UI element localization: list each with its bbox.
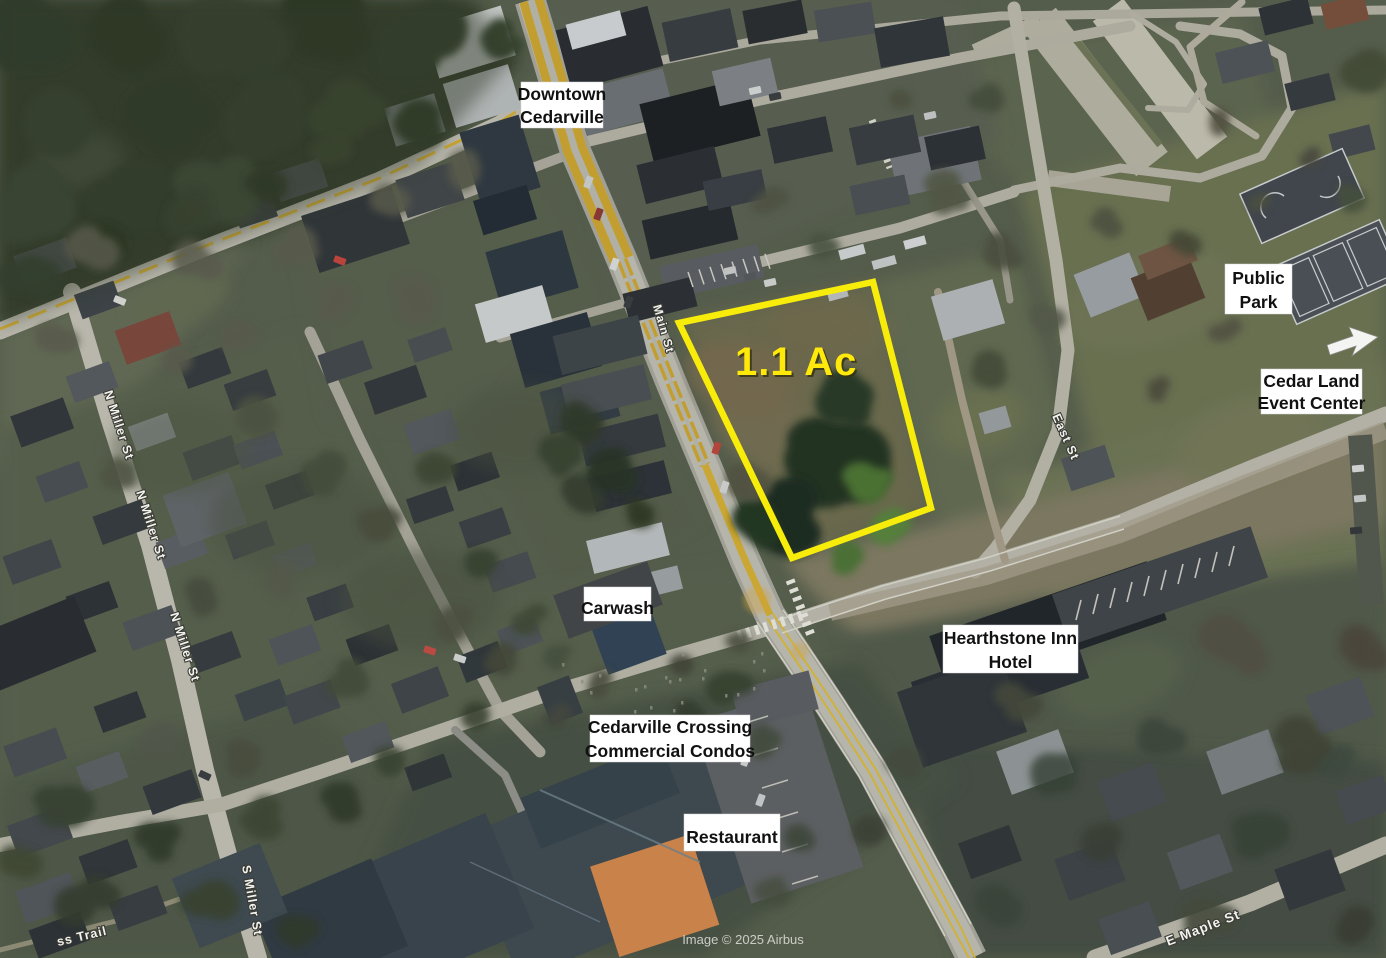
svg-text:Cedarville Crossing: Cedarville Crossing: [588, 717, 752, 737]
svg-text:Downtown: Downtown: [518, 84, 606, 104]
svg-text:Cedar Land: Cedar Land: [1263, 371, 1359, 391]
svg-text:Carwash: Carwash: [581, 598, 654, 618]
svg-text:Cedarville: Cedarville: [520, 107, 604, 127]
svg-text:Hotel: Hotel: [989, 652, 1033, 672]
svg-text:Image © 2025 Airbus: Image © 2025 Airbus: [682, 932, 804, 947]
svg-text:1.1 Ac: 1.1 Ac: [735, 340, 857, 384]
svg-text:Public: Public: [1232, 268, 1285, 288]
svg-text:Hearthstone Inn: Hearthstone Inn: [944, 628, 1077, 648]
svg-text:Park: Park: [1240, 292, 1278, 312]
svg-text:Restaurant: Restaurant: [686, 827, 778, 847]
svg-text:Event Center: Event Center: [1258, 393, 1366, 413]
svg-text:Commercial Condos: Commercial Condos: [585, 741, 755, 761]
